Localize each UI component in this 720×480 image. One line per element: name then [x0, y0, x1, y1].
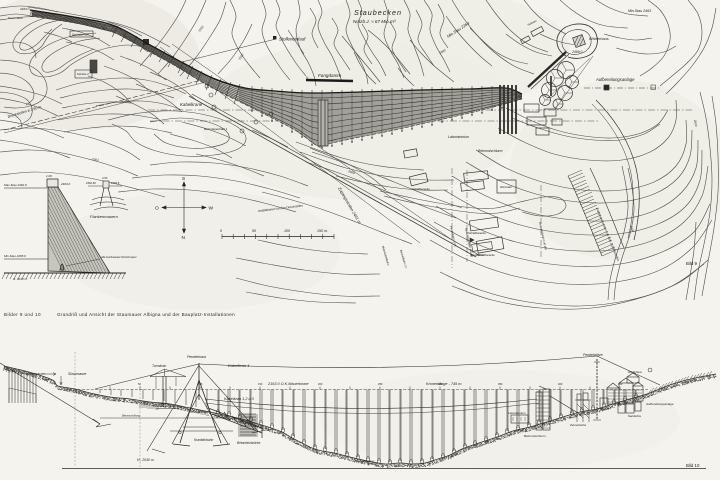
svg-text:Alte Hochwasser-Schutzmauer: Alte Hochwasser-Schutzmauer — [100, 255, 137, 259]
svg-text:V.: V. — [306, 76, 309, 80]
svg-text:Kernmauer: Kernmauer — [26, 372, 46, 376]
svg-text:2469.0: 2469.0 — [571, 50, 582, 54]
svg-text:N: N — [182, 235, 186, 241]
svg-text:Zementsilos: Zementsilos — [569, 423, 587, 427]
svg-text:150 m.: 150 m. — [317, 229, 328, 233]
svg-text:Staubecken: Staubecken — [354, 8, 402, 17]
svg-text:Schlafbaracke: Schlafbaracke — [412, 187, 430, 191]
svg-text:1.00: 1.00 — [46, 174, 52, 178]
svg-text:Min.Stau 2463: Min.Stau 2463 — [628, 9, 651, 13]
svg-text:100: 100 — [284, 229, 290, 233]
svg-text:Fangdamm: Fangdamm — [318, 73, 341, 78]
svg-text:H., 2040 m.: H., 2040 m. — [137, 458, 155, 462]
svg-text:2163.0 O.K.Mauerkrone: 2163.0 O.K.Mauerkrone — [267, 382, 309, 386]
svg-text:250: 250 — [378, 382, 383, 386]
svg-text:Kantine 2: Kantine 2 — [77, 72, 89, 76]
svg-text:Pendelmast: Pendelmast — [187, 355, 207, 359]
svg-text:Aufbereitungsanlage: Aufbereitungsanlage — [645, 402, 674, 406]
svg-text:Bilder 9 und 10: Bilder 9 und 10 — [4, 312, 41, 317]
svg-text:W: W — [209, 206, 214, 212]
svg-text:Sandsilos: Sandsilos — [628, 414, 642, 418]
svg-text:Betonlagerplatz 1: Betonlagerplatz 1 — [204, 127, 228, 131]
svg-text:Staumauer: Staumauer — [68, 372, 87, 376]
svg-text:S: S — [182, 176, 185, 182]
svg-text:Betonschüttung: Betonschüttung — [122, 414, 141, 418]
svg-text:0: 0 — [220, 229, 222, 233]
svg-text:H. 2040 m.: H. 2040 m. — [13, 277, 28, 281]
svg-text:350: 350 — [498, 382, 503, 386]
svg-text:Bild 10: Bild 10 — [686, 463, 700, 468]
svg-text:Min.Stau 2265.0: Min.Stau 2265.0 — [4, 254, 26, 258]
svg-text:Aufbereitungsanlage: Aufbereitungsanlage — [595, 77, 635, 82]
svg-text:Kabelkran 4: Kabelkran 4 — [228, 363, 250, 368]
svg-text:2462.60: 2462.60 — [85, 181, 96, 185]
svg-text:200: 200 — [318, 382, 323, 386]
svg-text:Betonmischturm: Betonmischturm — [524, 434, 546, 438]
svg-text:Kronenlänge - 745 m.: Kronenlänge - 745 m. — [426, 382, 463, 386]
svg-text:Kabelkrane: Kabelkrane — [180, 102, 203, 107]
svg-text:Nutzb.J. ≈ 67 Mio.m³: Nutzb.J. ≈ 67 Mio.m³ — [353, 19, 396, 24]
svg-text:Spritzgut-Silo: Spritzgut-Silo — [72, 33, 89, 37]
svg-text:Turmkran: Turmkran — [152, 364, 166, 368]
svg-text:Betonfahrbrücke: Betonfahrbrücke — [237, 441, 261, 445]
svg-text:Ausgleichsbecken: Ausgleichsbecken — [354, 460, 375, 463]
svg-text:Kernmauer: Kernmauer — [8, 16, 24, 20]
svg-text:50: 50 — [252, 229, 256, 233]
svg-text:Stolleneinlauf: Stolleneinlauf — [279, 37, 306, 42]
svg-text:O: O — [155, 206, 159, 212]
svg-text:Max.Stau 2462.6: Max.Stau 2462.6 — [4, 183, 27, 187]
svg-text:Kabelkran 1,2 u 3: Kabelkran 1,2 u 3 — [224, 397, 255, 401]
svg-text:Flankenmauern: Flankenmauern — [90, 214, 119, 219]
svg-text:Bild 9: Bild 9 — [686, 261, 698, 266]
svg-text:Laboratorium: Laboratorium — [508, 411, 526, 415]
svg-text:Betonmischturm: Betonmischturm — [478, 149, 503, 153]
svg-text:Werkstatt: Werkstatt — [500, 185, 512, 189]
svg-text:Wärterhaus: Wärterhaus — [628, 370, 643, 374]
svg-text:2463.6: 2463.6 — [110, 181, 120, 185]
svg-text:Wärterhaus: Wärterhaus — [589, 37, 609, 41]
svg-text:4.50: 4.50 — [102, 176, 108, 180]
svg-text:Grundriß und Ansicht der Staum: Grundriß und Ansicht der Staumauer Albig… — [57, 312, 235, 317]
svg-text:Kranfahrbahn: Kranfahrbahn — [194, 438, 214, 442]
svg-text:2463.0: 2463.0 — [60, 182, 71, 186]
svg-text:150: 150 — [258, 382, 263, 386]
svg-text:Pendelstütze: Pendelstütze — [583, 353, 603, 357]
svg-text:400: 400 — [558, 382, 563, 386]
svg-text:Laboratorium: Laboratorium — [448, 135, 469, 139]
svg-text:Schafhütten: Schafhütten — [470, 253, 484, 257]
svg-text:2463 m: 2463 m — [19, 7, 31, 11]
svg-text:Schlafbaracke: Schlafbaracke — [468, 231, 486, 235]
